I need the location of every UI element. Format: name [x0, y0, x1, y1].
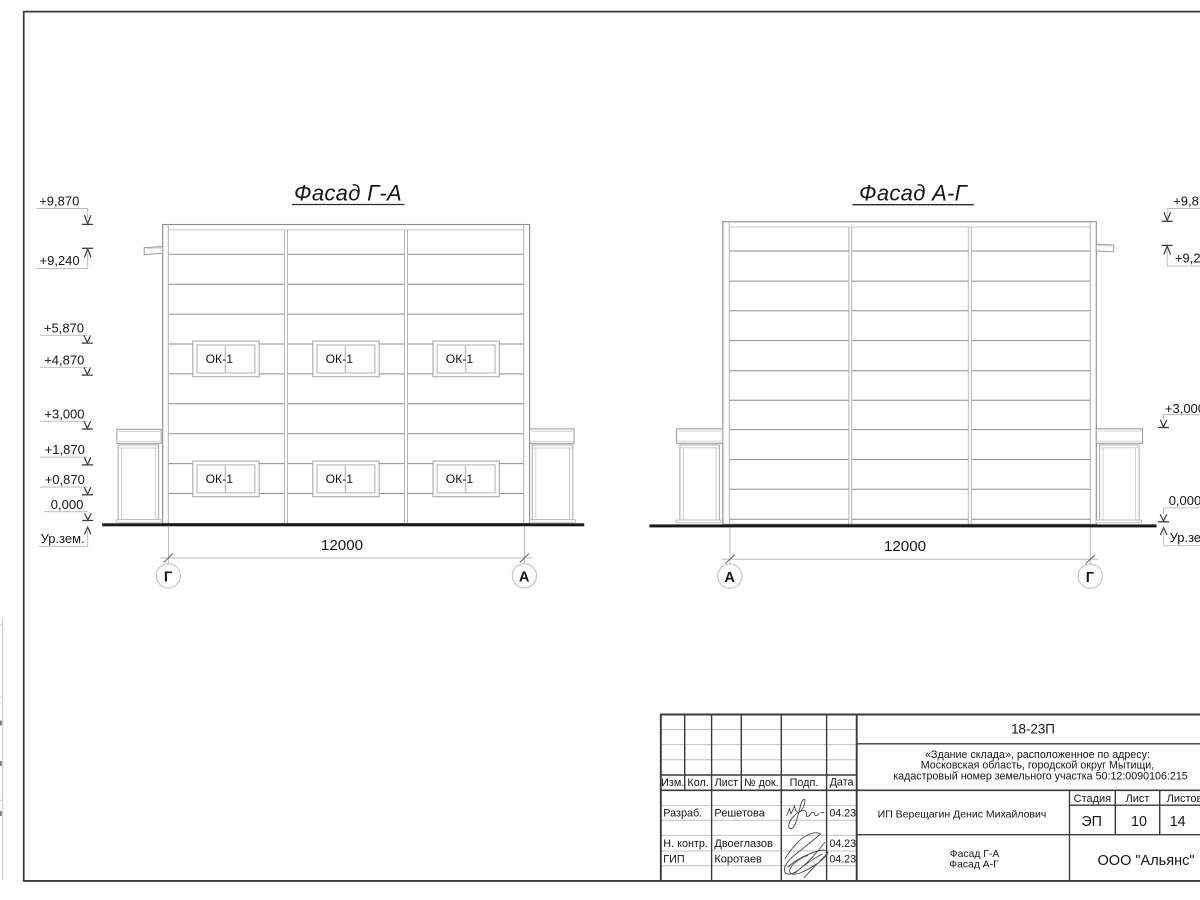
svg-text:+9,870: +9,870 — [1173, 193, 1200, 208]
svg-text:10: 10 — [1131, 814, 1147, 830]
svg-text:А: А — [519, 569, 530, 585]
svg-text:ОК-1: ОК-1 — [206, 352, 234, 366]
svg-text:Лист: Лист — [1126, 793, 1150, 805]
svg-text:04.23: 04.23 — [829, 838, 856, 850]
svg-text:Н. контр.: Н. контр. — [663, 838, 708, 850]
svg-text:ИП Верещагин Денис Михайлович: ИП Верещагин Денис Михайлович — [878, 808, 1047, 820]
svg-text:+4,870: +4,870 — [44, 352, 84, 367]
svg-text:+0,870: +0,870 — [45, 472, 85, 487]
svg-text:04.23: 04.23 — [829, 807, 856, 819]
svg-text:ОК-1: ОК-1 — [326, 352, 354, 366]
svg-text:Листов: Листов — [1167, 793, 1200, 805]
svg-text:Ур.зем.: Ур.зем. — [1170, 530, 1200, 545]
svg-text:0,000: 0,000 — [1169, 493, 1200, 508]
svg-text:кадастровый номер земельного у: кадастровый номер земельного участка 50:… — [893, 771, 1187, 783]
svg-text:Стадия: Стадия — [1074, 793, 1112, 805]
svg-text:№ док.: № док. — [744, 777, 779, 789]
svg-text:+3,000: +3,000 — [1165, 401, 1200, 416]
svg-text:18-23П: 18-23П — [1011, 722, 1055, 737]
svg-text:ОК-1: ОК-1 — [326, 472, 354, 486]
svg-text:ОК-1: ОК-1 — [206, 472, 234, 486]
svg-text:Кол.: Кол. — [687, 777, 708, 789]
svg-text:Двоеглазов: Двоеглазов — [714, 838, 773, 850]
svg-text:Коротаев: Коротаев — [714, 854, 762, 866]
svg-text:ОК-1: ОК-1 — [446, 472, 474, 486]
svg-text:04.23: 04.23 — [829, 853, 856, 865]
svg-text:+3,000: +3,000 — [44, 406, 84, 421]
svg-text:Фасад А-Г: Фасад А-Г — [949, 860, 999, 871]
svg-text:Г: Г — [164, 569, 172, 585]
svg-text:Решетова: Решетова — [714, 807, 765, 819]
svg-text:12000: 12000 — [321, 537, 363, 554]
svg-text:Изм.: Изм. — [661, 777, 684, 789]
svg-text:А: А — [724, 570, 735, 586]
svg-text:Подп.: Подп. — [790, 777, 819, 789]
svg-text:Дата: Дата — [830, 776, 854, 788]
svg-text:ООО "Альянс": ООО "Альянс" — [1098, 853, 1195, 869]
svg-text:+1,870: +1,870 — [45, 442, 85, 457]
svg-text:Фасад А-Г: Фасад А-Г — [859, 180, 969, 205]
svg-text:12000: 12000 — [884, 538, 926, 555]
svg-text:Ур.зем.: Ур.зем. — [41, 531, 85, 546]
svg-text:Фасад Г-А: Фасад Г-А — [950, 849, 1000, 860]
svg-text:+9,240: +9,240 — [1175, 250, 1200, 265]
svg-text:ОК-1: ОК-1 — [446, 352, 474, 366]
svg-text:Разраб.: Разраб. — [663, 807, 702, 819]
svg-text:+5,870: +5,870 — [44, 321, 84, 336]
svg-text:ЭП: ЭП — [1081, 814, 1102, 830]
svg-text:Лист: Лист — [715, 777, 739, 789]
svg-text:0,000: 0,000 — [51, 497, 84, 512]
svg-text:+9,240: +9,240 — [40, 253, 80, 268]
svg-text:ГИП: ГИП — [663, 854, 684, 866]
svg-text:Фасад Г-А: Фасад Г-А — [294, 180, 402, 205]
svg-text:+9,870: +9,870 — [39, 194, 79, 209]
svg-text:Г: Г — [1086, 570, 1094, 586]
svg-text:14: 14 — [1170, 814, 1186, 830]
